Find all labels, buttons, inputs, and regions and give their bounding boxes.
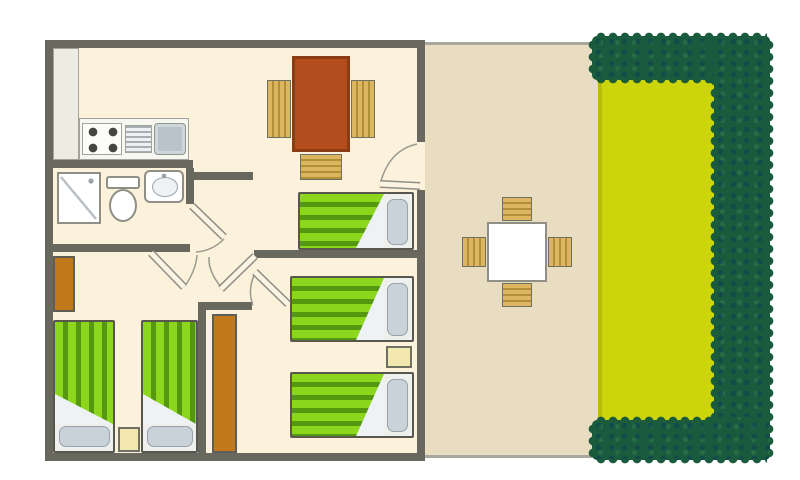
wall-kitchen-bathroom [53,160,193,168]
bed-blanket [55,322,113,424]
wall-bottom [45,453,425,461]
blanket-fold [356,278,384,340]
blanket-fold [55,394,113,424]
floor-plan-image [0,0,800,480]
dining-chair-right [351,80,375,138]
entrance-door-gap [417,142,425,190]
blanket-fold [356,374,384,436]
stove-icon [82,123,122,155]
washbasin-bowl [152,177,178,197]
blanket-fold [143,394,196,424]
hedge-edge [769,39,777,457]
pillow [59,426,110,447]
wall-vertical-divider [198,302,206,453]
bed-right-room-lower [290,372,414,438]
blanket-fold [356,194,384,248]
kitchen-tall-unit [53,48,79,160]
nightstand-right-room [386,346,412,368]
bed-blanket [300,194,384,248]
wall-left [45,40,53,461]
pillow [387,379,408,432]
bed-blanket [292,374,384,436]
dining-chair-left [267,80,291,138]
wardrobe-left-room [53,256,75,312]
pillow [387,199,408,245]
hedge-edge [595,459,767,467]
bed-right-room-upper [290,276,414,342]
kitchen-sink-icon [154,123,186,155]
hedge-right [714,36,770,460]
wall-middle-divider [254,250,417,258]
drainer-icon [125,125,152,153]
terrace-chair-right [548,237,572,267]
terrace-chair-bottom [502,283,532,307]
bed-left-room-right [141,320,198,453]
nightstand-left-room [118,427,140,452]
terrace-table [487,222,547,282]
toilet-icon [106,176,140,189]
wall-bottom-stub [198,302,252,310]
terrace-chair-top [502,197,532,221]
bed-left-room-left [53,320,115,453]
toilet-bowl-icon [109,189,137,222]
bed-middle-room [298,192,414,250]
wall-right-lower [417,190,425,461]
hedge-bottom [592,420,770,460]
wall-top [45,40,425,48]
dining-table [292,56,350,152]
terrace-chair-left [462,237,486,267]
hedge-edge [585,423,593,457]
lawn [598,78,722,426]
wall-bathroom-bottom [53,244,190,252]
dining-chair-bottom [300,154,342,180]
pillow [387,283,408,336]
wardrobe-right-room [212,314,237,453]
bed-blanket [292,278,384,340]
shower-icon [57,172,101,224]
washbasin-icon [144,170,184,203]
bed-blanket [143,322,196,424]
hedge-edge [707,39,715,457]
wall-hall-stub [193,172,253,180]
hedge-edge [595,413,767,421]
wall-right-upper [417,40,425,142]
hedge-edge [585,39,593,77]
pillow [147,426,193,447]
